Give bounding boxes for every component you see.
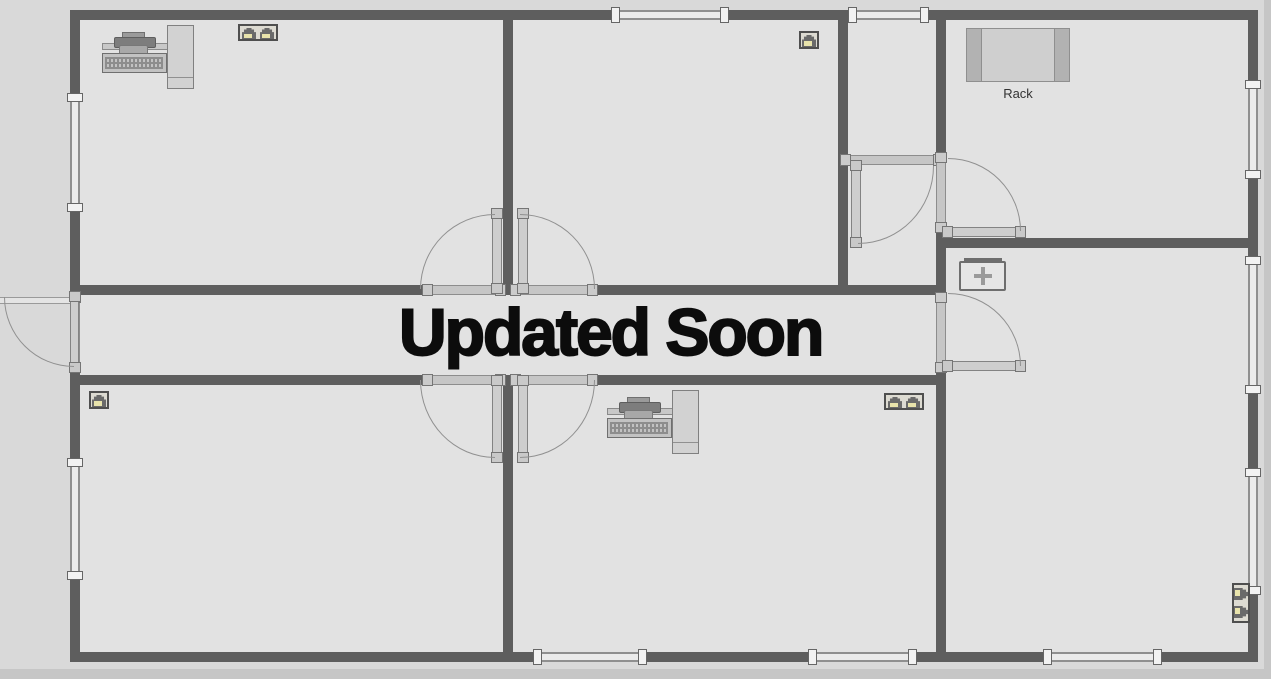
wall-center-upper — [503, 10, 513, 295]
window — [1045, 652, 1160, 662]
rj45-duplex-outlet-icon — [238, 24, 278, 41]
door-opening — [936, 155, 946, 230]
window — [1248, 258, 1258, 392]
window — [535, 652, 645, 662]
canvas-edge — [0, 669, 1271, 679]
rj45-jack-icon — [260, 28, 274, 39]
door-opening — [936, 295, 946, 370]
rj45-jack-icon — [242, 28, 256, 39]
rack-label: Rack — [966, 86, 1070, 101]
rj45-jack-icon — [906, 397, 920, 408]
junction-box-icon — [959, 261, 1006, 291]
wall-corridor-bottom — [70, 375, 946, 385]
rj45-duplex-outlet-vertical-icon — [1232, 583, 1250, 623]
window — [1248, 470, 1258, 593]
rj45-jack-icon — [1234, 588, 1248, 600]
wall-vestibule-left — [838, 10, 848, 295]
rack-side-panel — [967, 29, 982, 81]
rj45-jack-icon — [888, 397, 902, 408]
rj45-duplex-outlet-icon — [884, 393, 924, 410]
window — [1248, 82, 1258, 177]
wall-center-lower — [503, 375, 513, 662]
wall-rack-room-bottom — [936, 238, 1258, 248]
rj45-jack-icon — [1234, 606, 1248, 618]
rack-side-panel — [1054, 29, 1069, 81]
workstation-icon — [605, 390, 698, 452]
window — [810, 652, 915, 662]
computer-tower — [167, 25, 194, 89]
door-swing-arc — [4, 297, 74, 367]
floor-plan-canvas: Rack Updated Soon — [0, 0, 1271, 679]
junction-box-lid — [964, 258, 1002, 261]
workstation-icon — [100, 25, 193, 87]
window — [70, 95, 80, 210]
rj45-jack-icon — [92, 395, 106, 407]
computer-tower — [672, 390, 699, 454]
canvas-edge — [1264, 0, 1271, 679]
rj45-outlet-icon — [799, 31, 819, 49]
cross-icon — [974, 267, 992, 285]
keyboard — [607, 418, 672, 438]
keyboard — [102, 53, 167, 73]
rj45-outlet-icon — [89, 391, 109, 409]
rack-icon — [966, 28, 1070, 82]
rj45-jack-icon — [802, 35, 816, 47]
window — [613, 10, 727, 20]
overlay-text: Updated Soon — [399, 294, 822, 370]
window — [850, 10, 927, 20]
window — [70, 460, 80, 578]
